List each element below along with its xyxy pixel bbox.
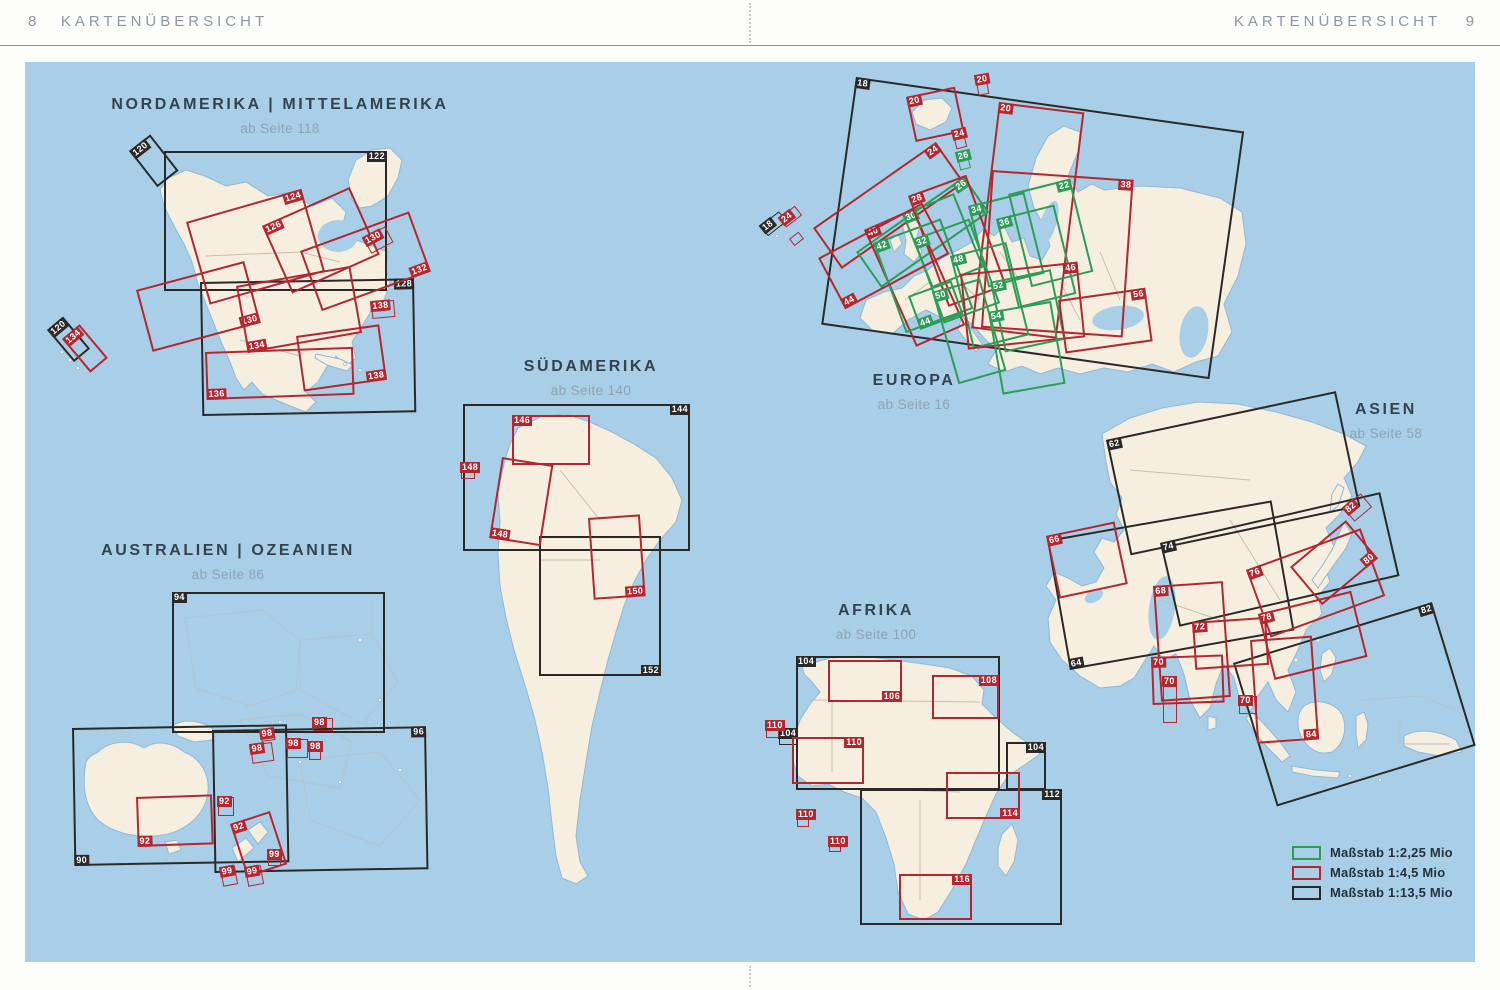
land-sri-lanka (1208, 716, 1216, 730)
legend-label: Maßstab 1:13,5 Mio (1330, 885, 1453, 900)
atlas-spread: 8 KARTENÜBERSICHT KARTENÜBERSICHT 9 (0, 0, 1500, 990)
legend-item-green: Maßstab 1:2,25 Mio (1292, 845, 1453, 860)
legend-label: Maßstab 1:2,25 Mio (1330, 845, 1453, 860)
hudson-bay (318, 220, 358, 252)
legend-item-red: Maßstab 1:4,5 Mio (1292, 865, 1453, 880)
legend-label: Maßstab 1:4,5 Mio (1330, 865, 1445, 880)
land-australia (84, 742, 208, 836)
legend-swatch-red (1292, 866, 1321, 880)
legend-item-black: Maßstab 1:13,5 Mio (1292, 885, 1453, 900)
legend-swatch-black (1292, 886, 1321, 900)
legend-swatch-green (1292, 846, 1321, 860)
world-map-graphic (0, 0, 1500, 990)
scale-legend: Maßstab 1:2,25 MioMaßstab 1:4,5 MioMaßst… (1292, 845, 1453, 905)
